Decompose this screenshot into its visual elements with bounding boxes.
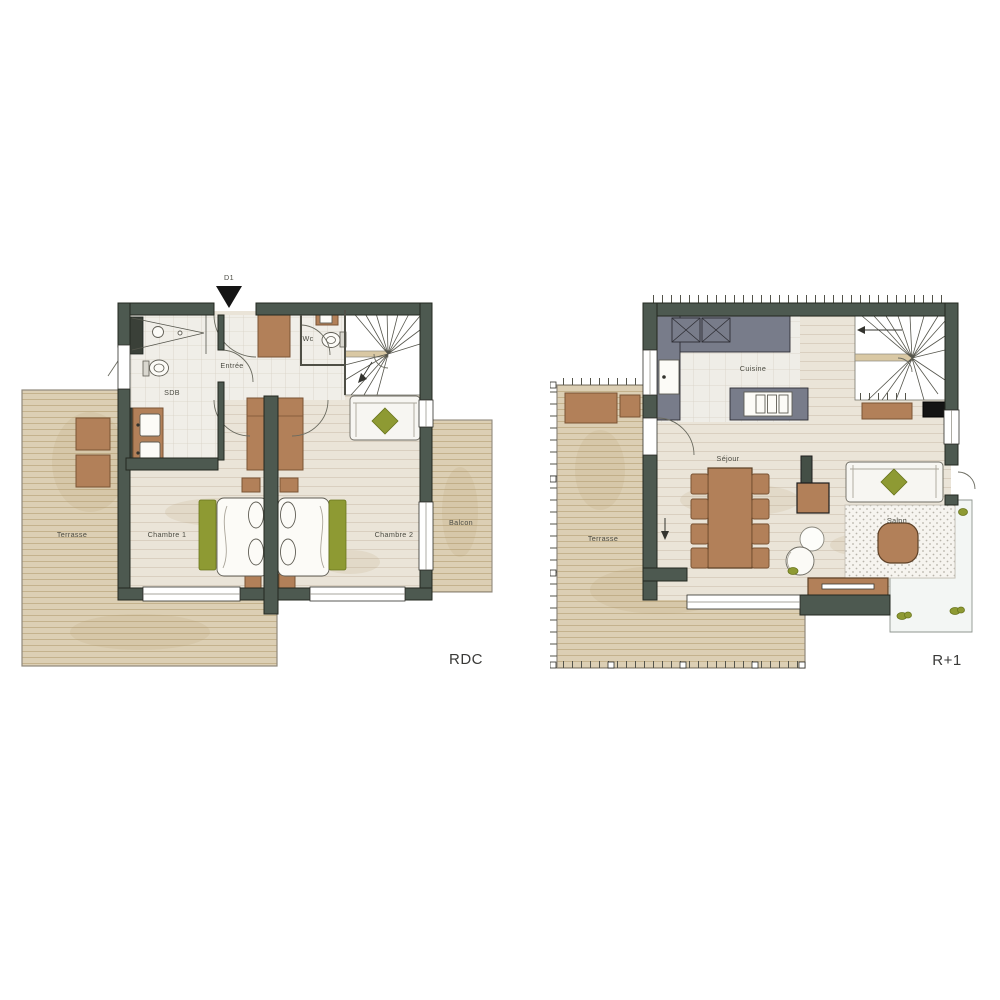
room-label-cuisine: Cuisine [740, 364, 766, 373]
entry-door-marker: D1 [216, 273, 242, 308]
tv-console [808, 578, 888, 596]
floor-label-rdc: RDC [449, 651, 483, 668]
bench-sofa [350, 396, 420, 440]
room-label-chambre1: Chambre 1 [148, 530, 187, 539]
room-label-terrasse: Terrasse [588, 534, 618, 543]
terrace-table [620, 395, 640, 417]
dining-chair [752, 474, 769, 494]
room-label-salon: Salon [887, 516, 907, 525]
floorplan-sheet: D1 Terrasse SDB Entrée Wc Chambre 1 Cham… [0, 0, 1000, 1000]
terrace-lounger [565, 393, 617, 423]
r1-floor-plan: Cuisine Séjour Salon Terrasse R+1 [550, 290, 980, 680]
staircase [855, 316, 945, 400]
room-label-chambre2: Chambre 2 [375, 530, 414, 539]
toilet [143, 360, 169, 376]
entry-arrow-icon [216, 286, 242, 308]
stair-bench [862, 403, 912, 419]
armchair [786, 547, 814, 575]
dining-chair [752, 548, 769, 568]
rdc-floor-plan: D1 Terrasse SDB Entrée Wc Chambre 1 Cham… [20, 262, 500, 674]
bedside-table [280, 478, 298, 492]
room-label-wc: Wc [302, 334, 313, 343]
staircase [345, 310, 420, 395]
room-label-balcon: Balcon [449, 518, 473, 527]
kitchen-sink [659, 360, 679, 394]
bed-chambre1 [199, 498, 268, 576]
kitchen-island [730, 388, 808, 420]
bedside-table [242, 478, 260, 492]
bed-chambre2 [278, 498, 346, 576]
room-label-terrasse: Terrasse [57, 530, 87, 539]
coffee-table [878, 523, 918, 563]
plant [959, 509, 968, 516]
dining-chair [691, 524, 708, 544]
dining-chair [752, 524, 769, 544]
dining-chair [691, 499, 708, 519]
room-label-sdb: SDB [164, 388, 180, 397]
terrace-lounger [76, 418, 110, 450]
terrace-lounger [76, 455, 110, 487]
dining-chair [752, 499, 769, 519]
dining-chair [691, 474, 708, 494]
dining-table [691, 468, 769, 568]
room-label-sejour: Séjour [717, 454, 740, 463]
entry-door-label: D1 [224, 273, 234, 282]
room-label-entree: Entrée [220, 361, 243, 370]
sofa [846, 462, 943, 502]
dining-chair [691, 548, 708, 568]
floor-label-r1: R+1 [932, 652, 961, 669]
entry-console [258, 313, 290, 357]
